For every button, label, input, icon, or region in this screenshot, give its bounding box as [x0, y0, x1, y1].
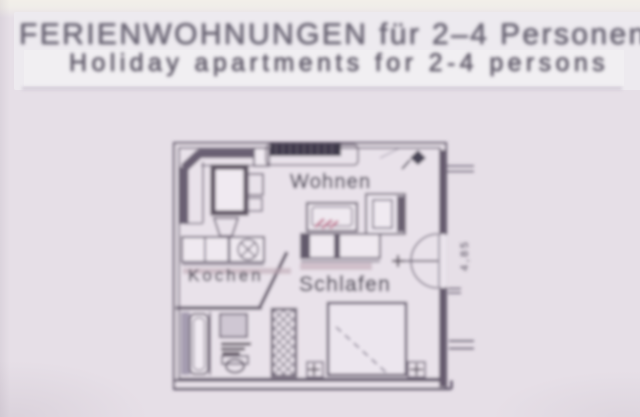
svg-text:Wohnen: Wohnen	[290, 171, 371, 193]
svg-text:Kochen: Kochen	[188, 266, 264, 285]
svg-text:4,85: 4,85	[459, 240, 471, 271]
svg-text:Schlafen: Schlafen	[299, 273, 391, 296]
